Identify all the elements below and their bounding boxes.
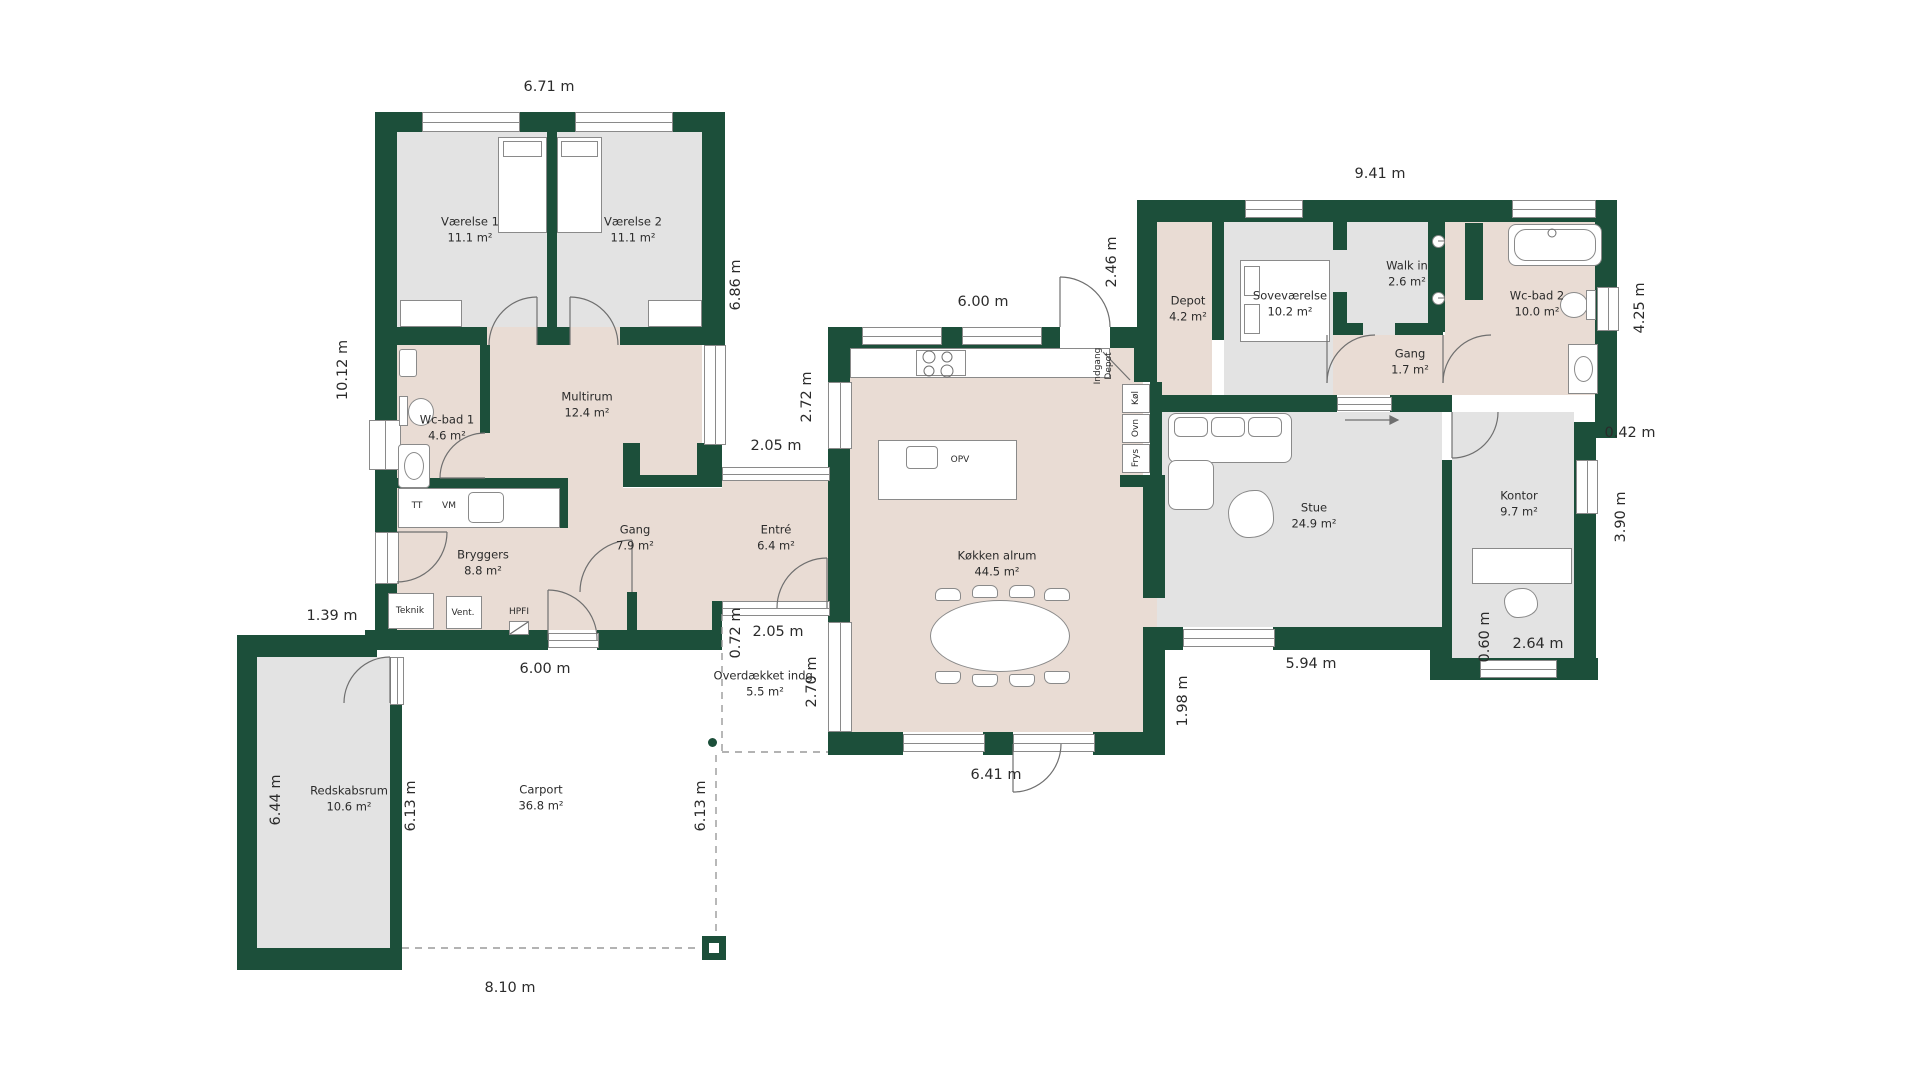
- room-name: Gang: [616, 522, 654, 538]
- room-label-stue: Stue24.9 m²: [1291, 500, 1336, 531]
- room-area: 11.1 m²: [604, 230, 662, 246]
- dimension-label: 6.13 m: [693, 780, 709, 831]
- room-area: 4.2 m²: [1169, 309, 1207, 325]
- vent-label: Vent.: [451, 608, 474, 618]
- room-name: Multirum: [561, 389, 612, 405]
- indgang-label-line: Depot: [1104, 348, 1115, 385]
- room-area: 9.7 m²: [1500, 504, 1538, 520]
- room-label-walkin: Walk in2.6 m²: [1386, 258, 1428, 289]
- hpfi-label: HPFI: [509, 607, 529, 617]
- room-name: Køkken alrum: [958, 548, 1037, 564]
- dimension-label: 0.72 m: [728, 607, 744, 658]
- dimension-label: 2.70 m: [804, 656, 820, 707]
- dimension-label: 8.10 m: [484, 980, 535, 996]
- room-name: Værelse 2: [604, 214, 662, 230]
- room-label-depot: Depot4.2 m²: [1169, 293, 1207, 324]
- oven-label: Ovn: [1131, 419, 1141, 437]
- room-label-vaerelse-1: Værelse 111.1 m²: [441, 214, 499, 245]
- dimension-label: 6.00 m: [519, 661, 570, 677]
- room-name: Redskabsrum: [310, 783, 388, 799]
- room-label-bryggers: Bryggers8.8 m²: [457, 547, 509, 578]
- room-area: 7.9 m²: [616, 538, 654, 554]
- dimension-label: 6.00 m: [957, 294, 1008, 310]
- room-area: 5.5 m²: [714, 684, 817, 700]
- dimension-label: 0.60 m: [1477, 611, 1493, 662]
- dishwasher-label: OPV: [951, 455, 970, 465]
- dimension-label: 6.71 m: [523, 79, 574, 95]
- room-name: Entré: [757, 522, 795, 538]
- dimension-label: 6.13 m: [403, 780, 419, 831]
- room-name: Gang: [1391, 346, 1429, 362]
- room-area: 10.2 m²: [1253, 304, 1327, 320]
- indgang-depot-label: IndgangDepot: [1093, 348, 1116, 385]
- dimension-label: 0.42 m: [1604, 425, 1655, 441]
- freezer-label: Frys: [1131, 449, 1141, 467]
- indgang-label-line: Indgang: [1093, 348, 1104, 385]
- dimension-label: 1.98 m: [1175, 675, 1191, 726]
- room-name: Overdækket indg.: [714, 668, 817, 684]
- room-area: 10.6 m²: [310, 799, 388, 815]
- dimension-label: 6.86 m: [728, 259, 744, 310]
- room-name: Depot: [1169, 293, 1207, 309]
- room-name: Carport: [518, 782, 563, 798]
- room-area: 4.6 m²: [420, 428, 474, 444]
- room-name: Kontor: [1500, 488, 1538, 504]
- room-area: 1.7 m²: [1391, 362, 1429, 378]
- room-area: 36.8 m²: [518, 798, 563, 814]
- room-name: Wc-bad 1: [420, 412, 474, 428]
- room-label-wcbad1: Wc-bad 14.6 m²: [420, 412, 474, 443]
- room-name: Wc-bad 2: [1510, 288, 1564, 304]
- dimension-label: 2.64 m: [1512, 636, 1563, 652]
- room-area: 6.4 m²: [757, 538, 795, 554]
- teknik-label: Teknik: [396, 606, 424, 616]
- room-label-vaerelse-2: Værelse 211.1 m²: [604, 214, 662, 245]
- room-label-wcbad2: Wc-bad 210.0 m²: [1510, 288, 1564, 319]
- dimension-label: 6.41 m: [970, 767, 1021, 783]
- dimension-label: 2.72 m: [799, 371, 815, 422]
- room-area: 2.6 m²: [1386, 274, 1428, 290]
- fridge-label: Køl: [1131, 391, 1141, 405]
- room-name: Værelse 1: [441, 214, 499, 230]
- dimension-label: 10.12 m: [335, 340, 351, 400]
- room-area: 8.8 m²: [457, 563, 509, 579]
- room-label-gang-17: Gang1.7 m²: [1391, 346, 1429, 377]
- dimension-label: 2.05 m: [750, 438, 801, 454]
- dimension-label: 3.90 m: [1613, 491, 1629, 542]
- dimension-label: 2.05 m: [752, 624, 803, 640]
- room-label-koekken-alrum: Køkken alrum44.5 m²: [958, 548, 1037, 579]
- room-label-entre: Entré6.4 m²: [757, 522, 795, 553]
- tumble-dryer-label: TT: [412, 501, 423, 511]
- room-label-multirum: Multirum12.4 m²: [561, 389, 612, 420]
- dimension-label: 6.44 m: [268, 774, 284, 825]
- room-label-overdaekket: Overdækket indg.5.5 m²: [714, 668, 817, 699]
- room-label-kontor: Kontor9.7 m²: [1500, 488, 1538, 519]
- room-area: 24.9 m²: [1291, 516, 1336, 532]
- room-area: 12.4 m²: [561, 405, 612, 421]
- room-label-carport: Carport36.8 m²: [518, 782, 563, 813]
- room-name: Stue: [1291, 500, 1336, 516]
- room-label-redskabsrum: Redskabsrum10.6 m²: [310, 783, 388, 814]
- floor-plan: Værelse 111.1 m² Værelse 211.1 m² Wc-bad…: [0, 0, 1920, 1080]
- room-name: Bryggers: [457, 547, 509, 563]
- room-label-sovevaerelse: Soveværelse10.2 m²: [1253, 288, 1327, 319]
- dimension-label: 5.94 m: [1285, 656, 1336, 672]
- room-area: 11.1 m²: [441, 230, 499, 246]
- door-swing-overlay: [0, 0, 1920, 1080]
- room-area: 44.5 m²: [958, 564, 1037, 580]
- dimension-label: 2.46 m: [1104, 236, 1120, 287]
- dimension-label: 9.41 m: [1354, 166, 1405, 182]
- washing-machine-label: VM: [442, 501, 456, 511]
- dimension-label: 1.39 m: [306, 608, 357, 624]
- dimension-label: 4.25 m: [1632, 282, 1648, 333]
- room-name: Soveværelse: [1253, 288, 1327, 304]
- room-name: Walk in: [1386, 258, 1428, 274]
- room-label-gang: Gang7.9 m²: [616, 522, 654, 553]
- room-area: 10.0 m²: [1510, 304, 1564, 320]
